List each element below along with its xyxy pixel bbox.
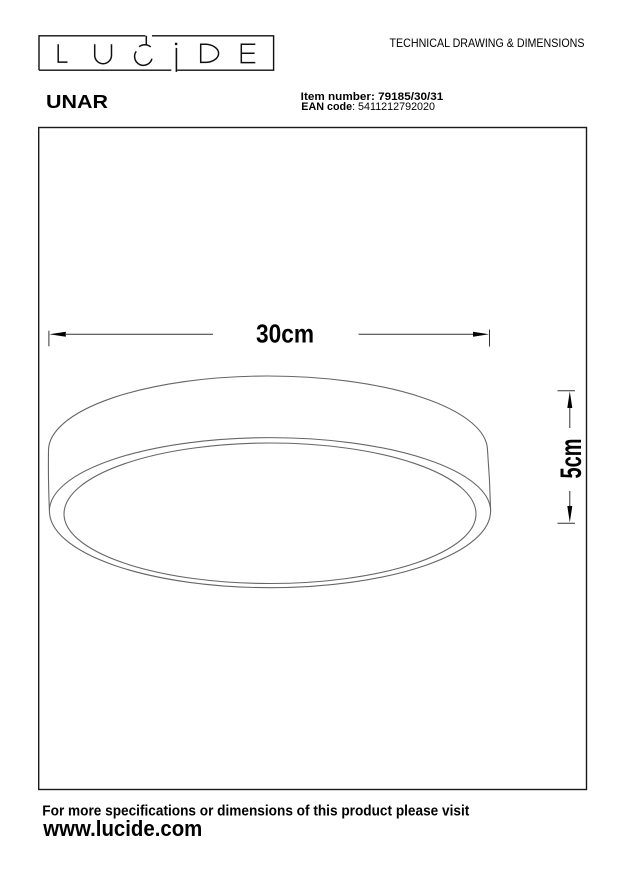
svg-text:www.lucide.com: www.lucide.com bbox=[42, 816, 202, 841]
svg-text:5cm: 5cm bbox=[554, 439, 588, 479]
svg-text:UNAR: UNAR bbox=[46, 91, 108, 112]
svg-text:30cm: 30cm bbox=[256, 319, 314, 349]
svg-text:TECHNICAL DRAWING & DIMENSIONS: TECHNICAL DRAWING & DIMENSIONS bbox=[390, 37, 585, 50]
svg-text:EAN code: 5411212792020: EAN code: 5411212792020 bbox=[301, 101, 435, 113]
